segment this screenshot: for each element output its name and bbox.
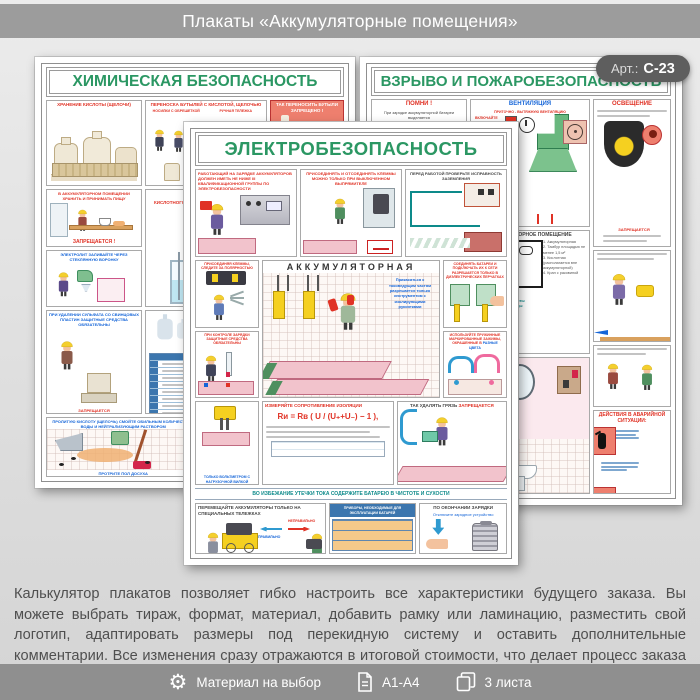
devices-table-rows [332, 519, 414, 551]
footer-material: ⚙ Материал на выбор [169, 672, 322, 693]
panel-polarity-title: ПРИСОЕДИНЯЯ КЛЕММЫ, СЛЕДИТЕ ЗА ПОЛЯРНОСТ… [196, 261, 258, 271]
after-charging-illustration [420, 517, 506, 553]
trolleys-illustration: НЕПРАВИЛЬНО ПРАВИЛЬНО [196, 517, 325, 554]
extinguisher-icon [594, 427, 616, 455]
panel-acid-storage-title: ХРАНЕНИЕ КИСЛОТЫ (ЩЕЛОЧИ) [47, 101, 141, 108]
emergency-actions-illustration: ☎ [594, 425, 670, 494]
panel-spill-cleanup: ПРОЛИТУЮ КИСЛОТУ (ЩЕЛОЧЬ) СМОЙТЕ ОБИЛЬНЫ… [46, 417, 200, 477]
panel-two-workers [593, 345, 671, 407]
panel-trolleys: ПЕРЕМЕЩАЙТЕ АККУМУЛЯТОРЫ ТОЛЬКО НА СПЕЦИ… [195, 503, 326, 554]
panel-qualification-title: РАБОТАЮЩИЙ НА ЗАРЯДКЕ АККУМУЛЯТОРОВ ДОЛЖ… [196, 170, 296, 191]
devices-table-title: ПРИБОРЫ, НЕОБХОДИМЫЕ ДЛЯ ЭКСПЛУАТАЦИИ БА… [330, 504, 416, 517]
battery-room-title: АККУМУЛЯТОРНАЯ [263, 261, 439, 273]
panel-devices-table: ПРИБОРЫ, НЕОБХОДИМЫЕ ДЛЯ ЭКСПЛУАТАЦИИ БА… [329, 503, 417, 554]
panel-insulation-title: ИЗМЕРЯЙТЕ СОПРОТИВЛЕНИЕ ИЗОЛЯЦИИ [263, 402, 393, 409]
sulfate-removal-illustration [47, 327, 141, 407]
article-label: Арт.: [611, 61, 638, 76]
dirt-removal-illustration [398, 409, 506, 484]
panel-insulation-resistance: ИЗМЕРЯЙТЕ СОПРОТИВЛЕНИЕ ИЗОЛЯЦИИ Rи = Rв… [262, 401, 394, 485]
clamps-illustration [444, 350, 506, 397]
panel-dirt-removal: ТАК УДАЛЯТЬ ГРЯЗЬ ЗАПРЕЩАЕТСЯ [397, 401, 507, 485]
room-list-2: 2. Тамбур площадью не менее 1,5 м² [543, 245, 587, 255]
room-list-4: 4. Кран с раковиной [543, 271, 587, 276]
panel-no-food: В АККУМУЛЯТОРНОМ ПОМЕЩЕНИИ ХРАНИТЬ И ПРИ… [46, 189, 142, 247]
document-icon [357, 672, 373, 692]
rectifier-illustration [301, 186, 401, 256]
lighting-illustration: ЗАПРЕЩАЕТСЯ [594, 119, 670, 247]
pour-funnel-illustration [47, 262, 141, 307]
panel-grounding-check: ПЕРЕД РАБОТОЙ ПРОВЕРЬТЕ ИСПРАВНОСТЬ ЗАЗЕ… [405, 169, 507, 257]
spill-cleanup-illustration [47, 429, 199, 470]
battery-room-note: Прикасаться к токоведущим частям разреша… [384, 277, 436, 309]
remember-text: При зарядке аккумуляторной батареи выдел… [372, 109, 466, 120]
footer-format-label: А1-А4 [382, 675, 420, 690]
footer-format: А1-А4 [357, 672, 420, 692]
panel-clamps-rectifier: ПРИСОЕДИНЯТЬ И ОТСОЕДИНЯТЬ КЛЕММЫ МОЖНО … [300, 169, 402, 257]
poster-electro-title: ЭЛЕКТРОБЕЗОПАСНОСТЬ [198, 135, 504, 163]
poster-electrical-safety: ЭЛЕКТРОБЕЗОПАСНОСТЬ РАБОТАЮЩИЙ НА ЗАРЯДК… [184, 122, 518, 565]
panel-clamps-title: ПРИСОЕДИНЯТЬ И ОТСОЕДИНЯТЬ КЛЕММЫ МОЖНО … [301, 170, 401, 186]
panel-no-food-title: В АККУМУЛЯТОРНОМ ПОМЕЩЕНИИ ХРАНИТЬ И ПРИ… [47, 190, 141, 201]
right-label: ПРАВИЛЬНО [258, 535, 280, 539]
page-header: Плакаты «Аккумуляторные помещения» [0, 4, 700, 38]
gear-icon: ⚙ [169, 672, 188, 693]
panel-remember-title: ПОМНИ ! [372, 100, 466, 109]
portable-lamp-illustration [594, 261, 670, 341]
article-badge: Арт.: С-23 [596, 55, 690, 82]
hydrometer-illustration [196, 346, 258, 397]
two-workers-illustration [594, 356, 670, 406]
panel-emergency-title: ДЕЙСТВИЯ В АВАРИЙНОЙ СИТУАЦИИ: [594, 411, 670, 425]
poster-chem-title: ХИМИЧЕСКАЯ БЕЗОПАСНОСТЬ [49, 70, 341, 94]
panel-grounding-title: ПЕРЕД РАБОТОЙ ПРОВЕРЬТЕ ИСПРАВНОСТЬ ЗАЗЕ… [406, 170, 506, 181]
page: Плакаты «Аккумуляторные помещения» ХИМИЧ… [0, 0, 700, 700]
panel-marked-clamps-title: ИСПОЛЬЗУЙТЕ ПРУЖИННЫЕ МАРКИРОВАННЫЕ ЗАЖИ… [444, 332, 506, 351]
dirt-text: ТАК УДАЛЯТЬ ГРЯЗЬ [410, 403, 457, 408]
panel-sulfate-removal: ПРИ УДАЛЕНИИ СУЛЬФАТА СО СВИНЦОВЫХ ПЛАСТ… [46, 310, 142, 414]
panel-lighting-title: ОСВЕЩЕНИЕ [594, 100, 670, 109]
no-food-ban-label: ЗАПРЕЩАЕТСЯ ! [47, 238, 141, 245]
panel-charge-control: ПРИ КОНТРОЛЕ ЗАРЯДКИ ЗАЩИТНЫЕ СРЕДСТВА О… [195, 331, 259, 399]
dirt-ban-text: ЗАПРЕЩАЕТСЯ [458, 403, 493, 408]
panel-dirt-title: ТАК УДАЛЯТЬ ГРЯЗЬ ЗАПРЕЩАЕТСЯ [398, 402, 506, 409]
qualification-illustration [196, 191, 296, 256]
panel-lighting: ОСВЕЩЕНИЕ ЗАПРЕЩАЕТСЯ [593, 99, 671, 247]
panel-trolleys-title: ПЕРЕМЕЩАЙТЕ АККУМУЛЯТОРЫ ТОЛЬКО НА СПЕЦИ… [196, 504, 325, 516]
page-footer: ⚙ Материал на выбор А1-А4 3 листа [0, 664, 700, 700]
panel-bottle-carrying-title: ПЕРЕНОСКА БУТЫЛЕЙ С КИСЛОТОЙ, ЩЕЛОЧЬЮ [146, 101, 266, 108]
acid-carboys-illustration [47, 108, 141, 185]
spill-caption: ПРОТРИТЕ ПОЛ ДОСУХА [47, 470, 199, 476]
panel-spill-title: ПРОЛИТУЮ КИСЛОТУ (ЩЕЛОЧЬ) СМОЙТЕ ОБИЛЬНЫ… [47, 418, 199, 429]
panel-battery-room: АККУМУЛЯТОРНАЯ Прикасаться к токоведущим… [262, 260, 440, 398]
footer-material-label: Материал на выбор [196, 675, 321, 690]
panel-dielectric-gloves: СОЕДИНЯТЬ БАТАРЕИ И ПОДКЛЮЧАТЬ ИХ К СЕТИ… [443, 260, 507, 328]
page-title: Плакаты «Аккумуляторные помещения» [182, 11, 518, 32]
footer-sheets-label: 3 листа [485, 675, 532, 690]
footer-sheets: 3 листа [456, 672, 532, 692]
panel-marked-clamps: ИСПОЛЬЗУЙТЕ ПРУЖИННЫЕ МАРКИРОВАННЫЕ ЗАЖИ… [443, 331, 507, 399]
voltmeter-caption: ТОЛЬКО ВОЛЬТМЕТРОМ С НАГРУЗОЧНОЙ ВИЛКОЙ [196, 474, 258, 484]
panel-gloves-title: СОЕДИНЯТЬ БАТАРЕИ И ПОДКЛЮЧАТЬ ИХ К СЕТИ… [444, 261, 506, 280]
panel-portable-lamp [593, 250, 671, 342]
grounding-diagram-illustration [406, 181, 506, 256]
panel-polarity: ПРИСОЕДИНЯЯ КЛЕММЫ, СЛЕДИТЕ ЗА ПОЛЯРНОСТ… [195, 260, 259, 328]
panel-sulfate-title: ПРИ УДАЛЕНИИ СУЛЬФАТА СО СВИНЦОВЫХ ПЛАСТ… [47, 311, 141, 327]
lighting-ban-label: ЗАПРЕЩАЕТСЯ [594, 226, 670, 232]
sulfate-ban-label: ЗАПРЕЩАЕТСЯ [47, 407, 141, 413]
insulation-formula: Rи = Rв ( U / (U₊+U₋) − 1 ), [263, 409, 393, 422]
cleanliness-strip: ВО ИЗБЕЖАНИЕ УТЕЧКИ ТОКА СОДЕРЖИТЕ БАТАР… [195, 488, 507, 500]
panel-pour-through-funnel: ЭЛЕКТРОЛИТ ЗАЛИВАЙТЕ ЧЕРЕЗ СТЕКЛЯННУЮ ВО… [46, 250, 142, 308]
voltmeter-illustration [196, 402, 258, 474]
room-list-3: 3. Кислотная (располагается вне аккумуля… [543, 256, 587, 271]
article-value: С-23 [643, 61, 674, 77]
panel-voltmeter: ТОЛЬКО ВОЛЬТМЕТРОМ С НАГРУЗОЧНОЙ ВИЛКОЙ [195, 401, 259, 485]
panel-acid-storage: ХРАНЕНИЕ КИСЛОТЫ (ЩЕЛОЧИ) [46, 100, 142, 186]
panel-ventilation-title: ВЕНТИЛЯЦИЯ [471, 100, 589, 109]
panel-charge-control-title: ПРИ КОНТРОЛЕ ЗАРЯДКИ ЗАЩИТНЫЕ СРЕДСТВА О… [196, 332, 258, 346]
panel-carrying-forbidden-title: ТАК ПЕРЕНОСИТЬ БУТЫЛИ ЗАПРЕЩЕНО ! [271, 101, 343, 113]
no-food-illustration [47, 201, 141, 238]
polarity-illustration [196, 271, 258, 327]
panel-after-title: ПО ОКОНЧАНИИ ЗАРЯДКИ [420, 504, 506, 511]
battery-room-illustration: Прикасаться к токоведущим частям разреша… [263, 273, 439, 397]
panel-after-charging: ПО ОКОНЧАНИИ ЗАРЯДКИ Отключите зарядное … [419, 503, 507, 554]
panel-pour-funnel-title: ЭЛЕКТРОЛИТ ЗАЛИВАЙТЕ ЧЕРЕЗ СТЕКЛЯННУЮ ВО… [47, 251, 141, 262]
panel-qualification: РАБОТАЮЩИЙ НА ЗАРЯДКЕ АККУМУЛЯТОРОВ ДОЛЖ… [195, 169, 297, 257]
panel-emergency-actions: ДЕЙСТВИЯ В АВАРИЙНОЙ СИТУАЦИИ: [593, 410, 671, 494]
vent-on-label: ВКЛЮЧАЙТЕ [475, 116, 501, 120]
sheets-icon [456, 672, 476, 692]
gloves-illustration [444, 280, 506, 327]
